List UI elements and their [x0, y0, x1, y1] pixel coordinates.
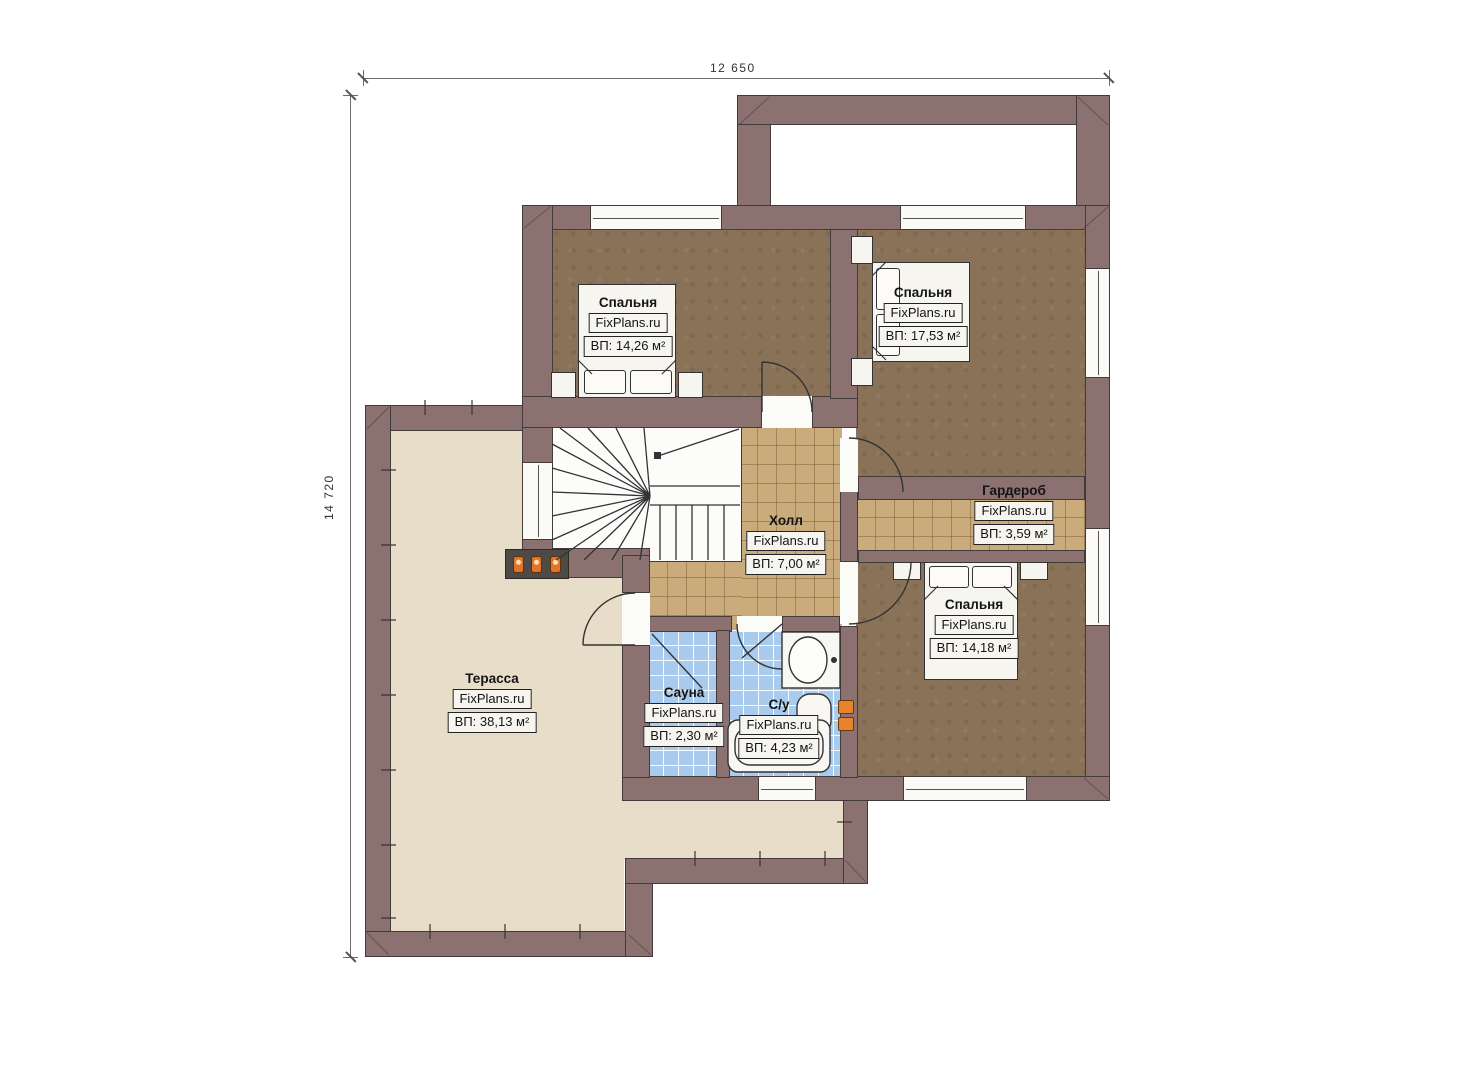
room-name: Спальня — [599, 296, 657, 310]
room-label-terrace: Терасса FixPlans.ru ВП: 38,13 м² — [448, 672, 537, 733]
room-label-bedroom-top-right: Спальня FixPlans.ru ВП: 17,53 м² — [879, 286, 968, 347]
room-label-bedroom-top-left: Спальня FixPlans.ru ВП: 14,26 м² — [584, 296, 673, 357]
nightstand — [851, 358, 873, 386]
nightstand — [678, 372, 703, 398]
door-opening-terrace — [622, 593, 650, 645]
floor-staircase — [550, 426, 742, 562]
room-brand: FixPlans.ru — [883, 303, 962, 323]
nightstand — [893, 562, 921, 580]
room-name: Терасса — [465, 672, 519, 686]
room-area: ВП: 3,59 м² — [973, 524, 1054, 544]
wall-bedroom1-south-right — [812, 396, 858, 428]
room-brand: FixPlans.ru — [974, 501, 1053, 521]
wall-bath-north — [782, 616, 840, 632]
room-name: Спальня — [945, 598, 1003, 612]
radiator-icon — [838, 700, 854, 714]
room-brand: FixPlans.ru — [588, 313, 667, 333]
window-bedroom2-east — [1085, 268, 1110, 378]
room-area: ВП: 14,18 м² — [930, 638, 1019, 658]
light-icon — [550, 556, 561, 573]
pillow — [929, 566, 969, 588]
wall-balcony-right — [1076, 95, 1110, 207]
room-name: Гардероб — [982, 484, 1046, 498]
window-bedroom2-north — [900, 205, 1026, 230]
room-label-bathroom: С/у FixPlans.ru ВП: 4,23 м² — [738, 698, 819, 759]
floor-terrace-lower — [622, 798, 845, 860]
wall-bedroom1-south-left — [522, 396, 762, 428]
window-bedroom3-south — [903, 776, 1027, 801]
wall-balcony-top — [737, 95, 1110, 125]
window-bedroom1-north — [590, 205, 722, 230]
dimension-line-top — [363, 78, 1110, 79]
wall-hall-wardrobe — [840, 490, 858, 562]
room-label-sauna: Сауна FixPlans.ru ВП: 2,30 м² — [643, 686, 724, 747]
pillow — [972, 566, 1012, 588]
door-opening-bedroom2 — [840, 438, 858, 492]
door-opening-bathroom — [737, 616, 782, 632]
room-name: Сауна — [664, 686, 705, 700]
room-brand: FixPlans.ru — [746, 531, 825, 551]
door-opening-bedroom3 — [840, 562, 858, 624]
room-name: С/у — [768, 698, 789, 712]
wall-terrace-bottom — [365, 931, 653, 957]
window-bedroom3-east — [1085, 528, 1110, 626]
light-icon — [531, 556, 542, 573]
floor-plan-canvas: 12 650 14 720 — [0, 0, 1473, 1080]
wall-terrace-door-north — [622, 555, 650, 593]
wall-terrace-lower-right — [843, 800, 868, 884]
room-brand: FixPlans.ru — [934, 615, 1013, 635]
nightstand — [851, 236, 873, 264]
room-name: Холл — [769, 514, 803, 528]
room-name: Спальня — [894, 286, 952, 300]
wall-terrace-left — [365, 405, 391, 957]
dimension-line-left — [350, 95, 351, 958]
dimension-label-left: 14 720 — [322, 474, 336, 520]
terrace-lights-strip — [505, 549, 569, 579]
radiator-icon — [838, 717, 854, 731]
room-area: ВП: 17,53 м² — [879, 326, 968, 346]
room-area: ВП: 14,26 м² — [584, 336, 673, 356]
room-brand: FixPlans.ru — [644, 703, 723, 723]
window-bathroom-south — [758, 776, 816, 801]
pillow — [584, 370, 626, 394]
room-area: ВП: 38,13 м² — [448, 712, 537, 732]
room-brand: FixPlans.ru — [452, 689, 531, 709]
room-brand: FixPlans.ru — [739, 715, 818, 735]
wall-terrace-lower-bottom — [625, 858, 868, 884]
wall-main-bottom — [622, 776, 1110, 801]
room-label-wardrobe: Гардероб FixPlans.ru ВП: 3,59 м² — [973, 484, 1054, 545]
floor-terrace-mid — [522, 576, 624, 933]
nightstand — [551, 372, 576, 398]
nightstand — [1020, 562, 1048, 580]
room-area: ВП: 2,30 м² — [643, 726, 724, 746]
light-icon — [513, 556, 524, 573]
room-label-bedroom-bottom-right: Спальня FixPlans.ru ВП: 14,18 м² — [930, 598, 1019, 659]
pillow — [630, 370, 672, 394]
room-label-hall: Холл FixPlans.ru ВП: 7,00 м² — [745, 514, 826, 575]
room-area: ВП: 4,23 м² — [738, 738, 819, 758]
dimension-label-top: 12 650 — [710, 61, 756, 75]
door-opening-bedroom1 — [762, 396, 812, 428]
room-area: ВП: 7,00 м² — [745, 554, 826, 574]
window-staircase-west — [522, 462, 553, 540]
